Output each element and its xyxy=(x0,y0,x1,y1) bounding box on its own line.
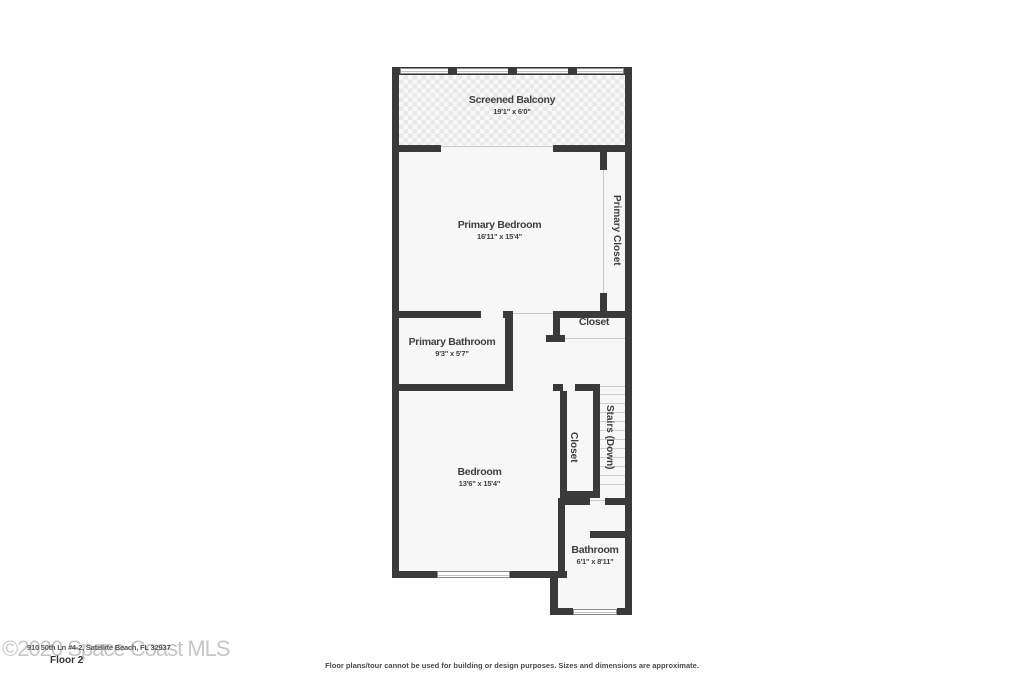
door-opening xyxy=(600,386,625,387)
wall xyxy=(550,608,573,615)
address-watermark: 910 50th Ln #4-2, Satellite Beach, FL 32… xyxy=(27,643,170,652)
window-mullion xyxy=(448,67,457,75)
room-name: Bedroom xyxy=(399,466,560,478)
window xyxy=(437,571,510,578)
room-name: Screened Balcony xyxy=(392,94,632,106)
wall xyxy=(392,145,441,152)
door-opening xyxy=(513,313,553,314)
wall xyxy=(600,293,607,311)
room-label-closet-top: Closet xyxy=(563,316,625,328)
wall xyxy=(553,145,632,152)
window-mullion xyxy=(568,67,577,75)
room-dims: 6'1" x 8'11" xyxy=(565,557,625,566)
wall xyxy=(392,571,437,578)
room-label-primary-closet: Primary Closet xyxy=(607,160,625,300)
wall xyxy=(510,571,567,578)
door-opening xyxy=(565,338,625,339)
room-label-bathroom: Bathroom 6'1" x 8'11" xyxy=(565,544,625,566)
room-dims: 13'6" x 15'4" xyxy=(399,479,560,488)
window-mullion xyxy=(508,67,517,75)
wall xyxy=(617,608,632,615)
room-name: Primary Bedroom xyxy=(399,219,600,231)
disclaimer-text: Floor plans/tour cannot be used for buil… xyxy=(0,661,1024,670)
room-name: Primary Bathroom xyxy=(399,336,505,348)
wall xyxy=(503,311,513,318)
room-label-stairs-down: Stairs (Down) xyxy=(601,390,617,485)
room-label-screened-balcony: Screened Balcony 19'1" x 6'0" xyxy=(392,94,632,116)
window xyxy=(573,609,617,615)
room-dims: 9'3" x 5'7" xyxy=(399,349,505,358)
wall xyxy=(553,384,563,391)
wall xyxy=(605,498,632,505)
wall xyxy=(600,152,607,170)
room-label-bedroom: Bedroom 13'6" x 15'4" xyxy=(399,466,560,488)
wall xyxy=(593,384,600,498)
room-dims: 19'1" x 6'0" xyxy=(392,107,632,116)
room-name: Closet xyxy=(563,316,625,328)
wall xyxy=(558,498,590,505)
room-dims: 16'11" x 15'4" xyxy=(399,232,600,241)
wall xyxy=(546,335,565,342)
wall xyxy=(392,384,513,391)
door-opening xyxy=(590,500,605,501)
wall xyxy=(558,505,565,578)
wall xyxy=(392,311,481,318)
wall xyxy=(505,318,513,384)
room-label-primary-bedroom: Primary Bedroom 16'11" x 15'4" xyxy=(399,219,600,241)
room-name: Bathroom xyxy=(565,544,625,556)
room-label-closet-lower: Closet xyxy=(566,400,580,495)
wall xyxy=(590,531,632,538)
door-opening xyxy=(441,146,553,147)
door-opening xyxy=(603,170,604,293)
room-label-primary-bathroom: Primary Bathroom 9'3" x 5'7" xyxy=(399,336,505,358)
